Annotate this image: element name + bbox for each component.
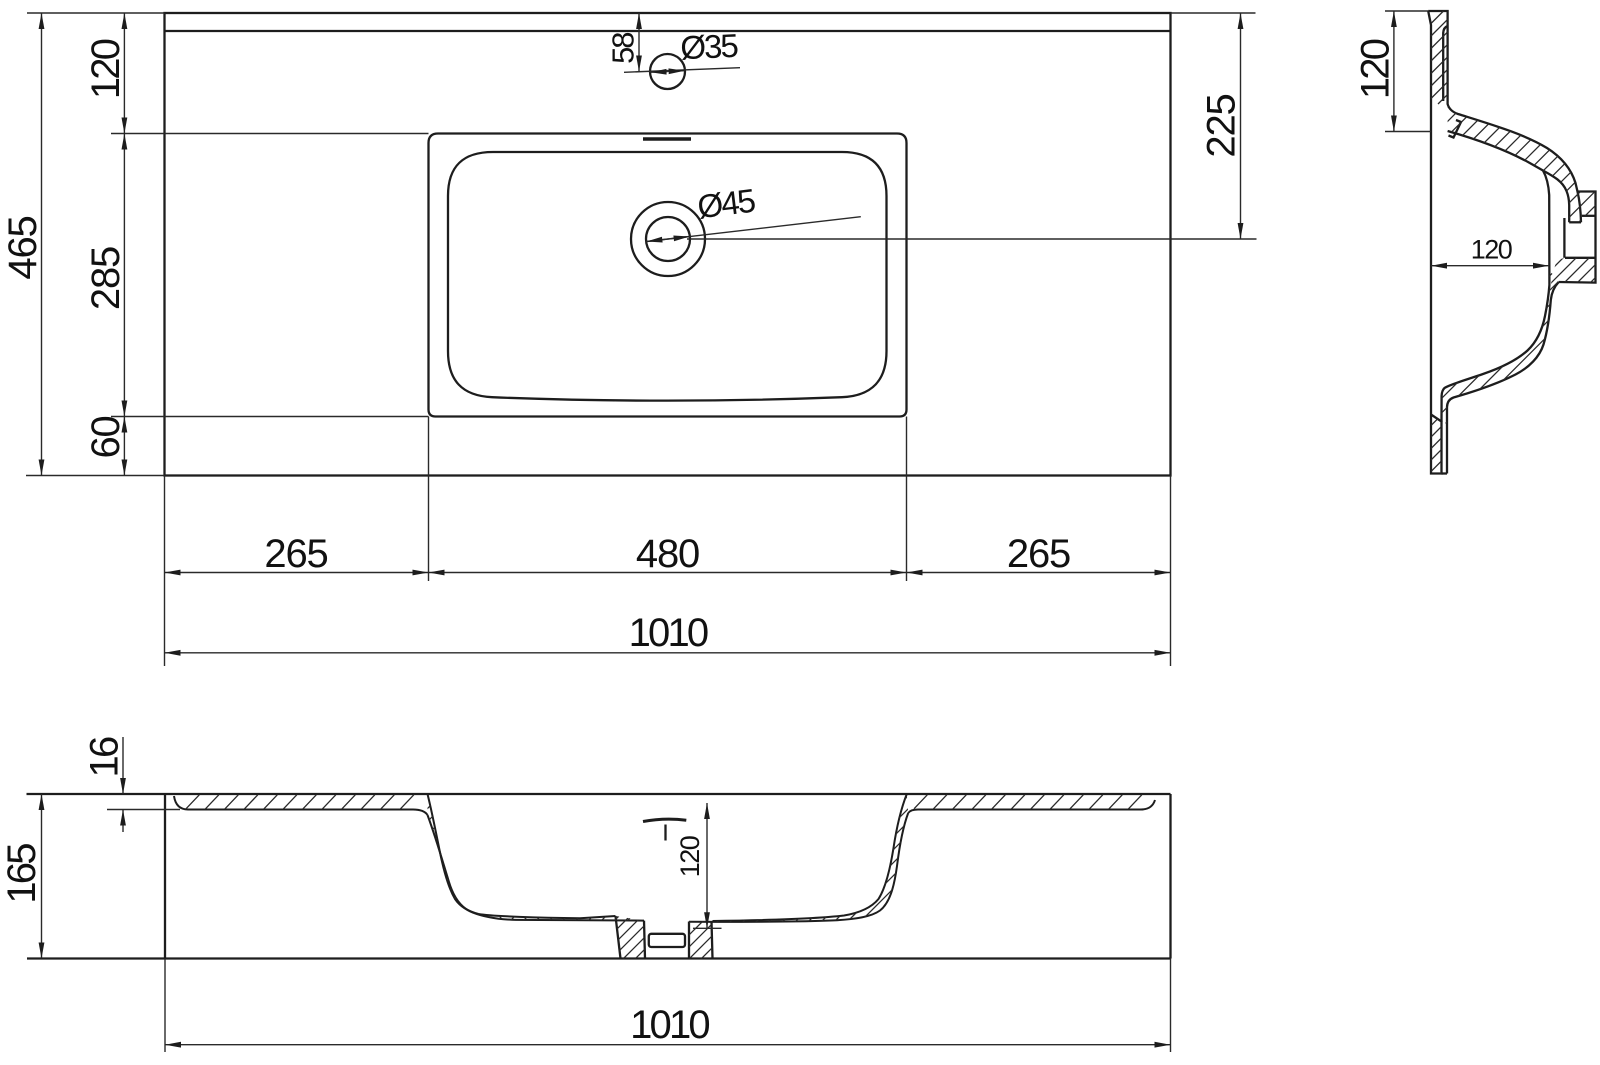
svg-text:165: 165 — [0, 844, 44, 904]
svg-text:465: 465 — [1, 216, 45, 279]
svg-text:1010: 1010 — [629, 611, 708, 655]
svg-text:Ø35: Ø35 — [680, 27, 739, 66]
svg-text:120: 120 — [84, 39, 128, 99]
svg-text:120: 120 — [1354, 39, 1398, 99]
svg-text:265: 265 — [1007, 532, 1070, 576]
svg-text:16: 16 — [83, 737, 127, 777]
svg-text:225: 225 — [1200, 94, 1244, 157]
svg-text:Ø45: Ø45 — [695, 182, 756, 226]
svg-text:1010: 1010 — [630, 1003, 709, 1047]
svg-text:120: 120 — [1471, 235, 1512, 265]
svg-text:58: 58 — [606, 33, 641, 64]
svg-text:60: 60 — [84, 416, 128, 458]
svg-text:480: 480 — [636, 532, 699, 576]
svg-text:120: 120 — [675, 836, 705, 877]
svg-text:285: 285 — [84, 247, 128, 310]
svg-text:265: 265 — [264, 532, 327, 576]
